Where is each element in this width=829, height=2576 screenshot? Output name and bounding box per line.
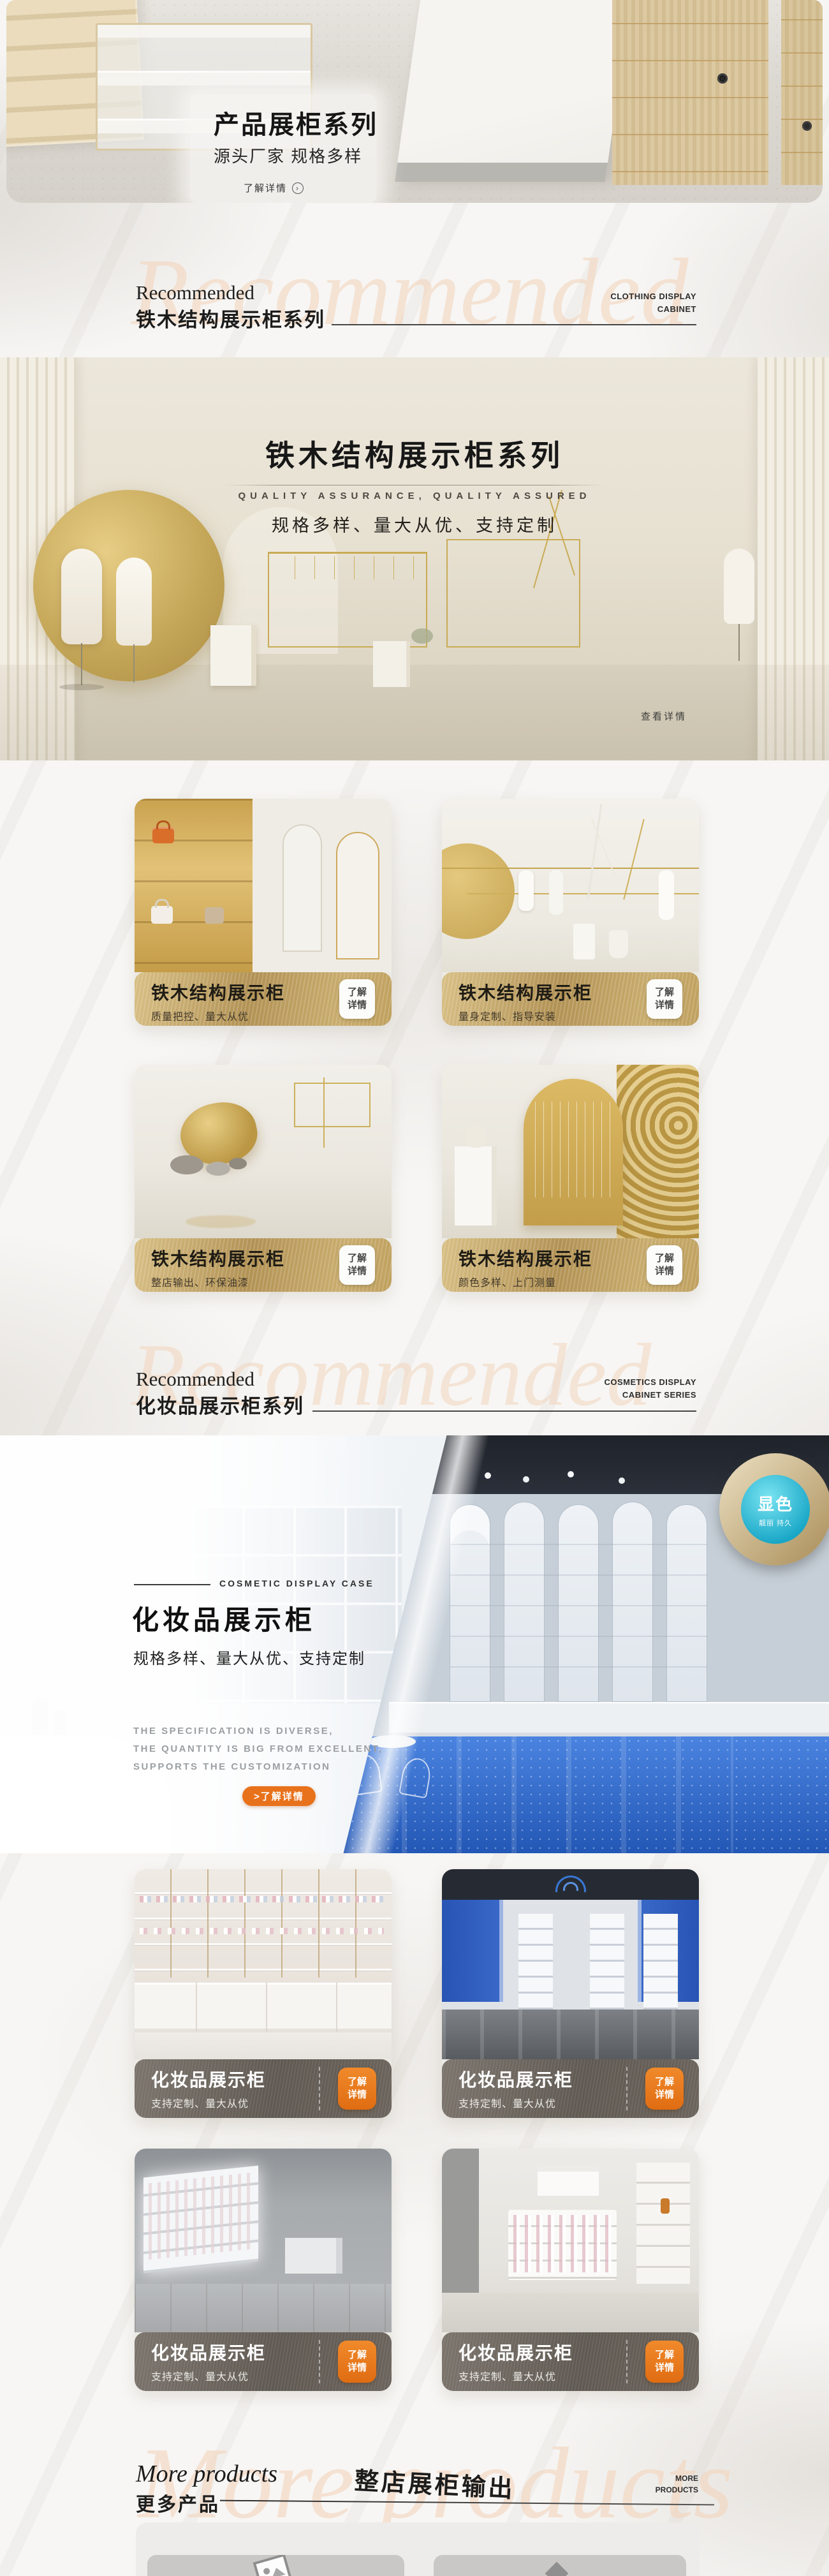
stone-decor xyxy=(206,1162,230,1176)
bar-divider xyxy=(626,2340,627,2383)
spotlight-icon xyxy=(485,1472,491,1479)
plant-pot-decor xyxy=(609,930,628,958)
gold-rack-decor xyxy=(294,1083,370,1127)
handbag-decor xyxy=(151,906,173,924)
hero-link-label: 了解详情 xyxy=(244,181,287,195)
section2-side-label: COSMETICS DISPLAY CABINET SERIES xyxy=(574,1376,696,1401)
display-table-decor xyxy=(285,2238,342,2274)
more-title: 更多产品 xyxy=(136,2489,220,2517)
mannequin-stand-decor xyxy=(81,643,82,685)
gold-art-panel-decor xyxy=(617,1065,699,1238)
card-label-bar: 化妆品展示柜 支持定制、量大从优 了解 详情 xyxy=(442,2332,699,2391)
image-placeholder-card xyxy=(147,2555,404,2576)
card-detail-button[interactable]: 了解 详情 xyxy=(647,1245,682,1285)
hero-detail-link[interactable]: 了解详情 › xyxy=(244,181,304,195)
bar-divider xyxy=(319,2340,320,2383)
product-photo xyxy=(442,2149,699,2332)
product-card-cosmetics-1[interactable]: 化妆品展示柜 支持定制、量大从优 了解 详情 xyxy=(135,1869,392,2118)
broken-image-icon xyxy=(253,2555,291,2576)
lock-icon xyxy=(717,73,728,84)
white-shelf-stack-decor xyxy=(643,1914,678,2010)
color-badge-inner: 显色 靓丽 持久 xyxy=(741,1475,810,1544)
mannequin-decor xyxy=(116,558,152,646)
marble-floor-decor xyxy=(135,2032,392,2059)
white-shelf-stack-decor xyxy=(518,1914,553,2010)
handbag-decor xyxy=(205,907,224,924)
wood-counter-decor xyxy=(612,0,768,185)
gold-tree-decor xyxy=(623,819,644,900)
product-photo xyxy=(442,799,699,972)
product-photo xyxy=(135,2149,392,2332)
mannequin-decor xyxy=(724,549,754,624)
display-rack-decor xyxy=(446,539,580,648)
rack-items-decor xyxy=(275,556,420,579)
amber-bottle-decor xyxy=(661,2198,670,2214)
bar-divider xyxy=(626,2067,627,2110)
more-eyebrow: More products xyxy=(136,2460,277,2488)
wood-counter-decor xyxy=(781,0,823,185)
banner1-title: 铁木结构展示柜系列 xyxy=(0,433,829,475)
banner1-tagline-en: QUALITY ASSURANCE, QUALITY ASSURED xyxy=(0,491,829,501)
card-detail-button[interactable]: 了解 详情 xyxy=(339,979,375,1019)
dress-decor xyxy=(659,870,674,920)
arch-mirror-decor xyxy=(336,832,379,959)
gold-rack-decor xyxy=(323,1077,325,1148)
mannequin-decor xyxy=(61,549,102,644)
gold-circle-decor xyxy=(442,843,515,939)
card-label-bar: 化妆品展示柜 支持定制、量大从优 了解 详情 xyxy=(442,2059,699,2118)
mannequin-stand-decor xyxy=(738,624,740,661)
card-detail-button[interactable]: 了解 详情 xyxy=(339,1245,375,1285)
card-label-bar: 铁木结构展示柜 整店输出、环保油漆 了解 详情 xyxy=(135,1238,392,1292)
product-row-decor xyxy=(140,1896,384,1902)
handbag-handle-decor xyxy=(156,820,170,829)
section2-rule xyxy=(312,1410,696,1412)
section1-eyebrow: Recommended xyxy=(136,281,254,304)
floor-reflection-decor xyxy=(402,1736,733,1853)
glossy-floor-decor xyxy=(442,2010,699,2059)
section2-eyebrow: Recommended xyxy=(136,1368,254,1391)
badge-title: 显色 xyxy=(758,1492,793,1515)
gold-rail-decor xyxy=(442,868,699,869)
section1-title: 铁木结构展示柜系列 xyxy=(136,304,325,332)
product-card-ironwood-3[interactable]: 铁木结构展示柜 整店输出、环保油漆 了解 详情 xyxy=(135,1065,392,1292)
handbag-handle-decor xyxy=(155,899,169,908)
product-rows-decor xyxy=(450,1544,707,1697)
banner1-text-block: 铁木结构展示柜系列 QUALITY ASSURANCE, QUALITY ASS… xyxy=(0,433,829,537)
banner2-eyebrow-line xyxy=(134,1584,210,1585)
banner1-tagline-cn: 规格多样、量大从优、支持定制 xyxy=(0,512,829,537)
product-photo xyxy=(135,1869,392,2059)
ironwood-card-grid: 铁木结构展示柜 质量把控、量大从优 了解 详情 xyxy=(135,799,701,1292)
more-products-panel xyxy=(136,2522,700,2576)
reflection-decor xyxy=(186,1215,256,1228)
card-detail-button[interactable]: 了解 详情 xyxy=(338,2341,376,2383)
section1-rule xyxy=(332,324,696,325)
card-detail-button[interactable]: 了解 详情 xyxy=(338,2068,376,2110)
shelf-products-decor xyxy=(513,2215,612,2272)
stand-base-decor xyxy=(59,684,104,690)
card-label-bar: 铁木结构展示柜 质量把控、量大从优 了解 详情 xyxy=(135,972,392,1026)
floor-decor xyxy=(442,2293,699,2332)
banner2-detail-button[interactable]: >了解详情 xyxy=(242,1786,316,1806)
bar-divider xyxy=(319,2067,320,2110)
product-card-ironwood-4[interactable]: 铁木结构展示柜 颜色多样、上门测量 了解 详情 xyxy=(442,1065,699,1292)
marble-floor-decor xyxy=(135,1177,392,1238)
image-placeholder-card xyxy=(434,2555,686,2576)
more-center-title: 整店展柜输出 xyxy=(354,2461,517,2504)
arch-mirror-decor xyxy=(282,824,322,952)
card-label-bar: 铁木结构展示柜 量身定制、指导安装 了解 详情 xyxy=(442,972,699,1026)
shelf-products-decor xyxy=(149,2173,251,2260)
product-photo xyxy=(442,1065,699,1238)
arrow-circle-icon: › xyxy=(292,182,304,194)
banner-cosmetics: 显色 靓丽 持久 COSMETIC DISPLAY CASE 化妆品展示柜 规格… xyxy=(0,1435,829,1853)
vase-decor xyxy=(465,1126,487,1148)
product-card-cosmetics-4[interactable]: 化妆品展示柜 支持定制、量大从优 了解 详情 xyxy=(442,2149,699,2391)
banner-ironwood-series: 铁木结构展示柜系列 QUALITY ASSURANCE, QUALITY ASS… xyxy=(0,357,829,760)
marble-pillar-decor xyxy=(395,0,632,182)
card-detail-button[interactable]: 了解 详情 xyxy=(645,2341,684,2383)
wood-floor-decor xyxy=(135,2284,392,2332)
banner1-divider xyxy=(223,485,606,485)
product-card-cosmetics-2[interactable]: 化妆品展示柜 支持定制、量大从优 了解 详情 xyxy=(442,1869,699,2118)
dress-decor xyxy=(518,870,534,911)
product-photo xyxy=(135,799,392,972)
lock-icon xyxy=(802,121,812,131)
banner2-title: 化妆品展示柜 xyxy=(132,1599,316,1638)
product-card-ironwood-2[interactable]: 铁木结构展示柜 量身定制、指导安装 了解 详情 xyxy=(442,799,699,1026)
hero-banner: 产品展柜系列 源头厂家 规格多样 了解详情 › xyxy=(6,0,823,203)
plant-decor xyxy=(411,628,433,644)
page: 产品展柜系列 源头厂家 规格多样 了解详情 › Recommended Reco… xyxy=(0,0,829,2576)
hero-title: 产品展柜系列 xyxy=(214,104,378,141)
hanging-chains-decor xyxy=(535,1102,612,1197)
white-shelf-stack-decor xyxy=(590,1914,624,2010)
product-photo xyxy=(135,1065,392,1238)
badge-subtitle: 靓丽 持久 xyxy=(759,1518,792,1528)
stone-decor xyxy=(229,1158,247,1169)
card-detail-button[interactable]: 了解 详情 xyxy=(645,2068,684,2110)
card-detail-button[interactable]: 了解 详情 xyxy=(647,979,682,1019)
cabinet-strip-decor xyxy=(389,1702,829,1736)
pedestal-decor xyxy=(455,1146,497,1225)
pedestal-decor xyxy=(210,625,256,686)
product-card-ironwood-1[interactable]: 铁木结构展示柜 质量把控、量大从优 了解 详情 xyxy=(135,799,392,1026)
card-label-bar: 化妆品展示柜 支持定制、量大从优 了解 详情 xyxy=(135,2059,392,2118)
section1-side-label: CLOTHING DISPLAY CABINET xyxy=(574,290,696,315)
tall-shelf-decor xyxy=(636,2163,690,2284)
pedestal-decor xyxy=(373,641,410,687)
stone-decor xyxy=(170,1155,203,1174)
more-side-label: MORE PRODUCTS xyxy=(644,2473,698,2496)
section2-title: 化妆品展示柜系列 xyxy=(136,1390,304,1419)
wall-sign-decor xyxy=(538,2165,599,2196)
banner2-tagline-cn: 规格多样、量大从优、支持定制 xyxy=(133,1646,365,1668)
branch-decor xyxy=(587,804,603,899)
banner2-tagline-en: THE SPECIFICATION IS DIVERSE, THE QUANTI… xyxy=(133,1722,383,1775)
dress-decor xyxy=(549,870,563,915)
blue-shelf-decor xyxy=(442,1900,503,2002)
pedestal-decor xyxy=(573,924,595,959)
card-label-bar: 化妆品展示柜 支持定制、量大从优 了解 详情 xyxy=(135,2332,392,2391)
cosmetics-card-grid: 化妆品展示柜 支持定制、量大从优 了解 详情 xyxy=(135,1869,701,2391)
hero-subtitle: 源头厂家 规格多样 xyxy=(214,144,362,167)
gold-frame-shelves-decor xyxy=(135,1869,392,1978)
white-cabinet-decor xyxy=(135,1983,392,2034)
card-label-bar: 铁木结构展示柜 颜色多样、上门测量 了解 详情 xyxy=(442,1238,699,1292)
product-photo xyxy=(442,1869,699,2059)
banner1-detail-link[interactable]: 查看详情 xyxy=(641,709,687,723)
product-card-cosmetics-3[interactable]: 化妆品展示柜 支持定制、量大从优 了解 详情 xyxy=(135,2149,392,2391)
cabinet-divider-decor xyxy=(196,1983,197,2034)
gold-shelf-decor xyxy=(135,799,253,972)
banner2-eyebrow: COSMETIC DISPLAY CASE xyxy=(219,1578,374,1588)
mannequin-stand-decor xyxy=(133,644,135,683)
color-badge: 显色 靓丽 持久 xyxy=(719,1453,829,1566)
broken-image-icon xyxy=(545,2562,569,2576)
product-row-decor xyxy=(140,1928,384,1934)
